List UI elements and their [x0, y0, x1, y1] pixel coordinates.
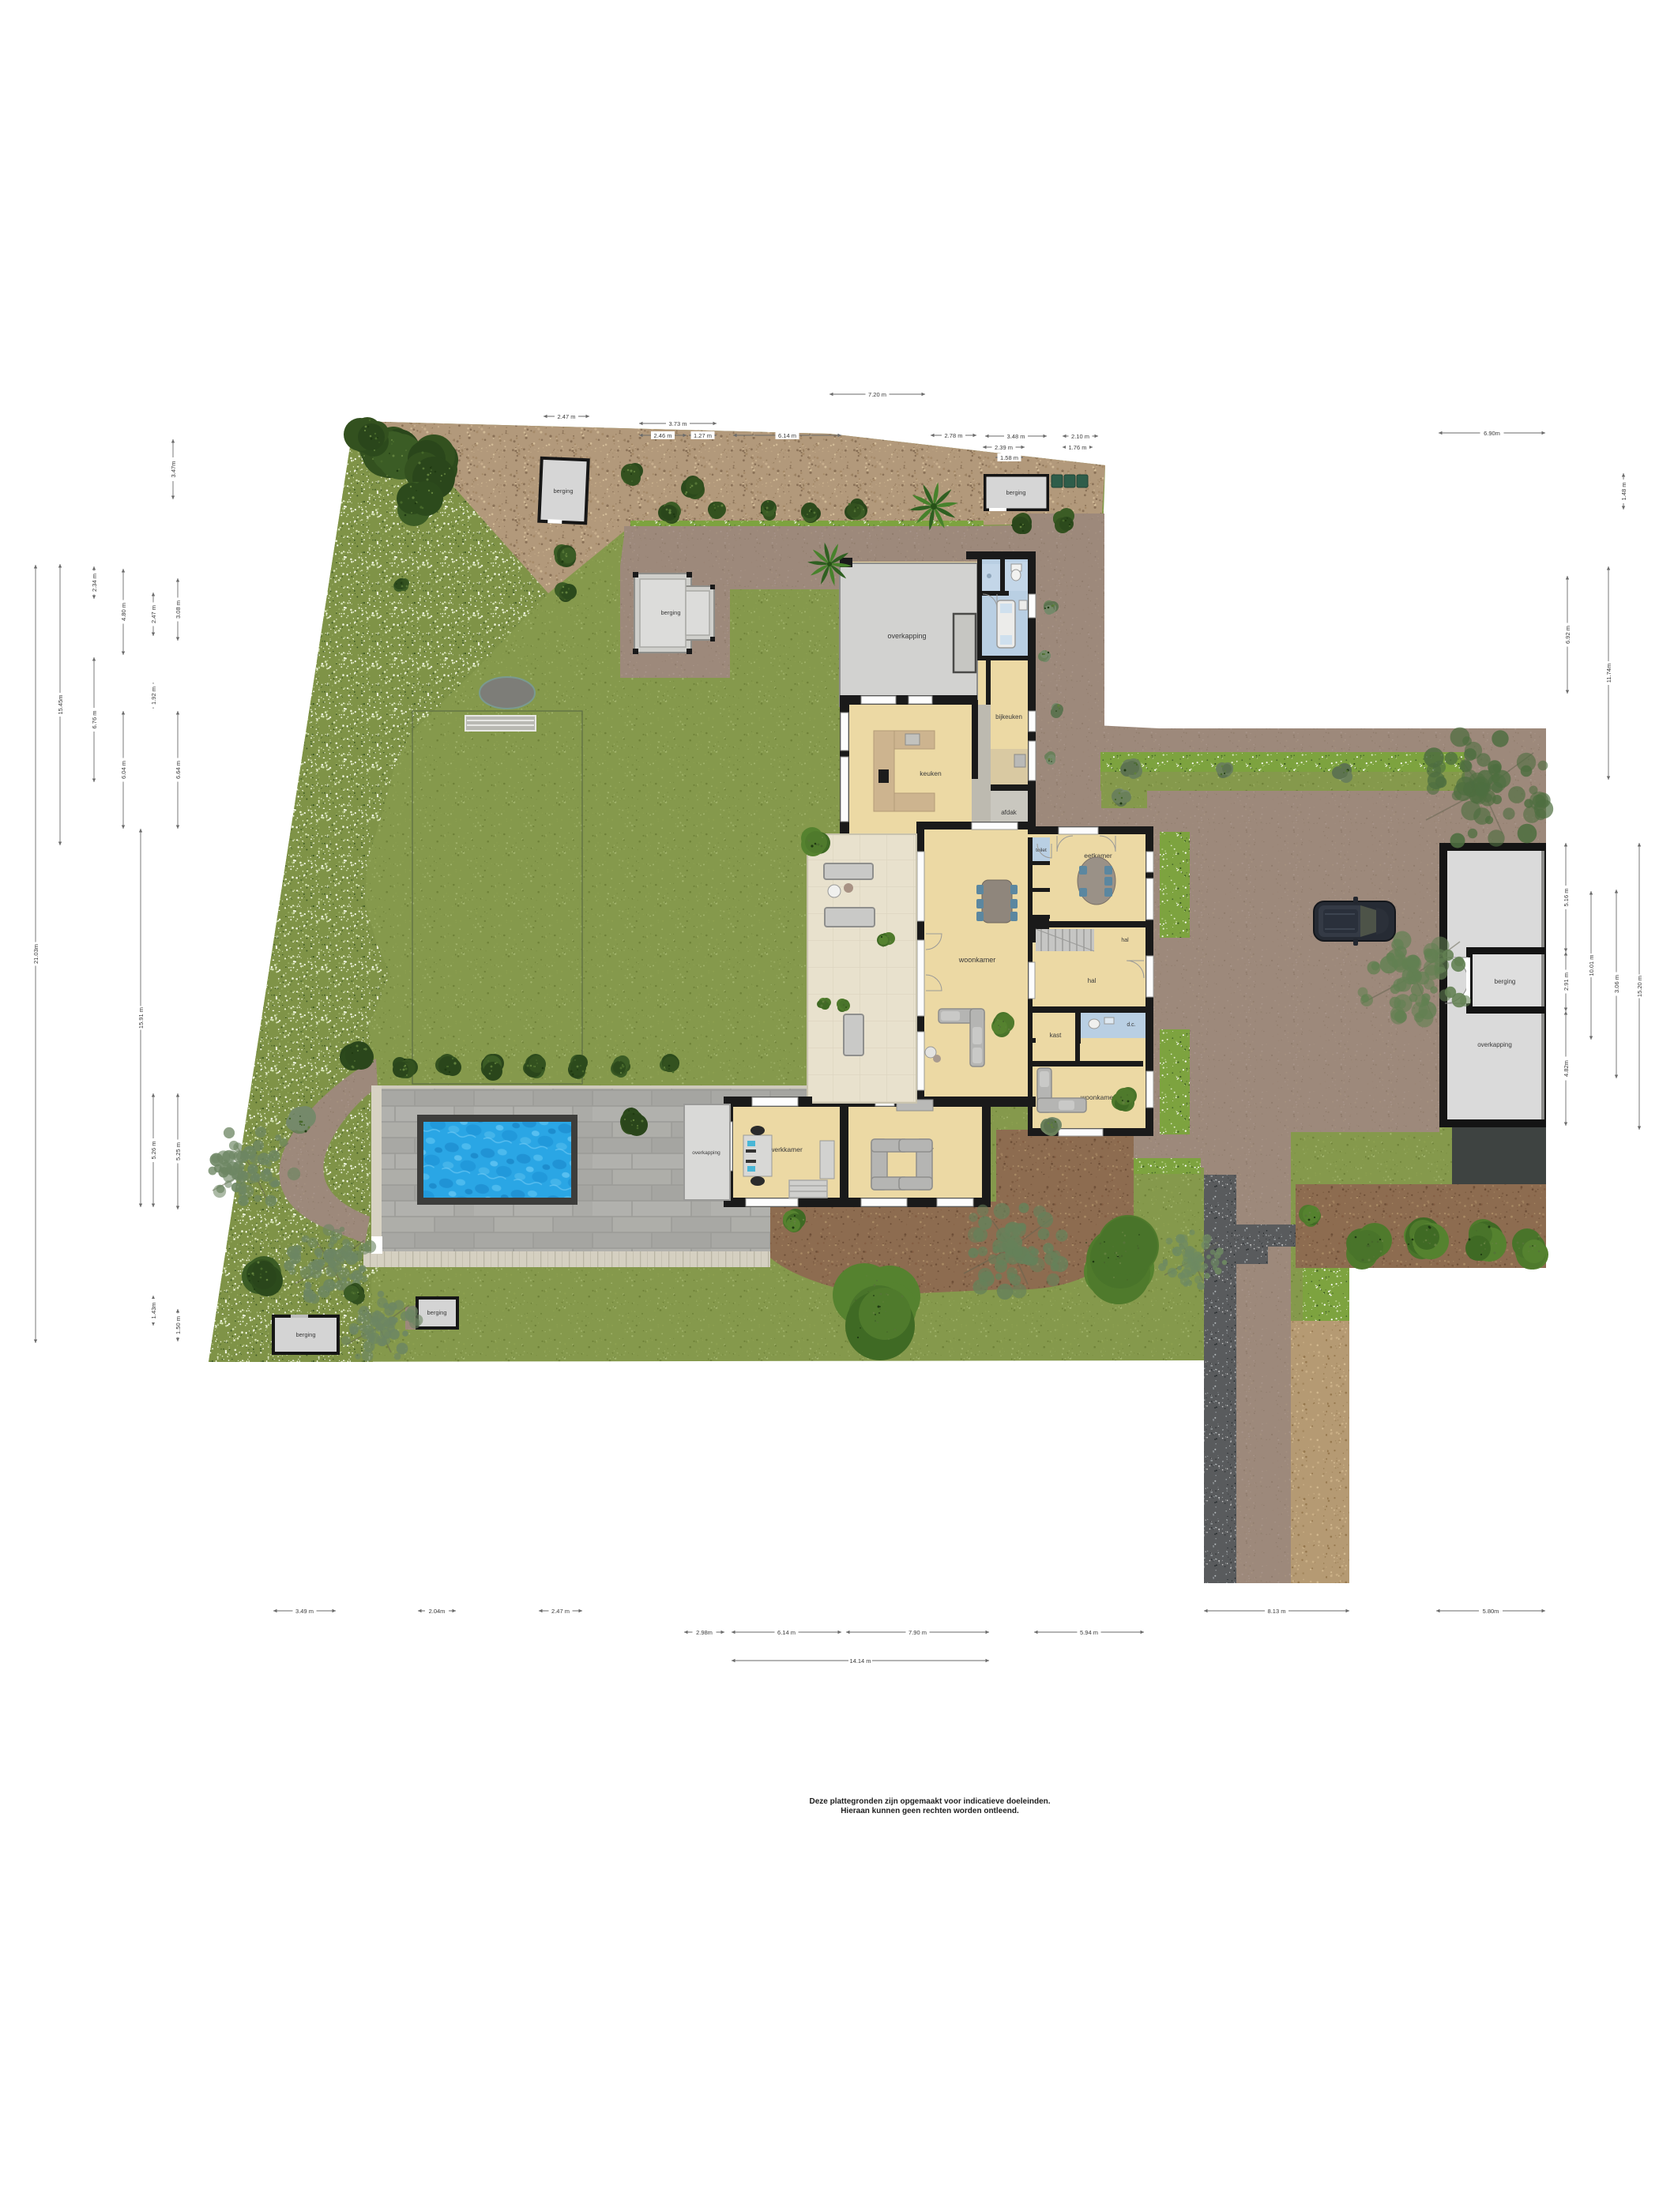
svg-text:hal: hal	[1088, 977, 1097, 984]
svg-text:overkapping: overkapping	[1477, 1041, 1512, 1048]
svg-text:1.43m: 1.43m	[150, 1303, 157, 1319]
svg-text:2.10 m: 2.10 m	[1071, 433, 1089, 440]
svg-text:2.47 m: 2.47 m	[558, 413, 576, 420]
svg-text:5.16 m: 5.16 m	[1563, 889, 1570, 907]
svg-text:overkapping: overkapping	[692, 1150, 720, 1156]
svg-text:5.80m: 5.80m	[1483, 1608, 1499, 1615]
svg-text:toilet: toilet	[1036, 848, 1047, 853]
svg-text:3.47m: 3.47m	[170, 461, 177, 478]
svg-text:7.90 m: 7.90 m	[908, 1629, 927, 1636]
svg-text:berging: berging	[553, 487, 573, 495]
svg-text:6.90m: 6.90m	[1484, 430, 1500, 437]
svg-text:2.47 m: 2.47 m	[551, 1608, 570, 1615]
svg-text:werkkamer: werkkamer	[769, 1145, 803, 1153]
svg-text:1.58 m: 1.58 m	[1000, 454, 1018, 461]
svg-text:2.46 m: 2.46 m	[654, 432, 672, 439]
svg-text:berging: berging	[1495, 978, 1516, 985]
svg-text:2.47 m: 2.47 m	[150, 605, 157, 623]
svg-text:3.06 m: 3.06 m	[1613, 975, 1620, 993]
svg-text:afdak: afdak	[1001, 809, 1018, 816]
svg-text:5.94 m: 5.94 m	[1080, 1629, 1098, 1636]
svg-text:hal: hal	[1121, 938, 1129, 943]
svg-text:berging: berging	[1006, 489, 1025, 496]
svg-text:bijkeuken: bijkeuken	[995, 713, 1022, 720]
svg-text:5.25 m: 5.25 m	[175, 1142, 182, 1161]
svg-text:4.80 m: 4.80 m	[120, 603, 127, 621]
svg-text:d.c.: d.c.	[1127, 1022, 1135, 1028]
svg-text:3.73 m: 3.73 m	[669, 420, 687, 427]
svg-text:15.45m: 15.45m	[57, 694, 64, 714]
svg-text:15.91 m: 15.91 m	[137, 1007, 145, 1029]
svg-text:5.26 m: 5.26 m	[150, 1142, 157, 1160]
svg-text:overkapping: overkapping	[887, 632, 926, 640]
svg-text:14.14 m: 14.14 m	[849, 1657, 871, 1665]
svg-text:6.14 m: 6.14 m	[778, 432, 796, 439]
svg-text:1.48 m: 1.48 m	[1620, 483, 1627, 501]
svg-text:keuken: keuken	[920, 769, 942, 777]
svg-text:2.39 m: 2.39 m	[995, 444, 1013, 451]
svg-text:3.49 m: 3.49 m	[295, 1608, 314, 1615]
svg-text:berging: berging	[427, 1309, 446, 1316]
svg-text:Hieraan kunnen geen rechten wo: Hieraan kunnen geen rechten worden ontle…	[841, 1807, 1019, 1815]
svg-text:7.20 m: 7.20 m	[868, 391, 886, 398]
svg-text:6.64 m: 6.64 m	[175, 761, 182, 779]
svg-text:6.76 m: 6.76 m	[91, 711, 98, 729]
svg-text:berging: berging	[295, 1331, 315, 1338]
svg-text:6.04 m: 6.04 m	[120, 761, 127, 779]
svg-text:11.74m: 11.74m	[1605, 664, 1612, 683]
svg-text:1.92 m: 1.92 m	[150, 687, 157, 705]
svg-text:berging: berging	[660, 609, 680, 616]
svg-text:10.01 m: 10.01 m	[1588, 954, 1595, 976]
svg-text:2.04m: 2.04m	[429, 1608, 446, 1615]
svg-text:3.48 m: 3.48 m	[1007, 433, 1025, 440]
svg-text:kast: kast	[1050, 1032, 1062, 1039]
svg-text:2.78 m: 2.78 m	[945, 432, 963, 439]
svg-text:1.76 m: 1.76 m	[1069, 444, 1087, 451]
svg-text:4.82m: 4.82m	[1563, 1060, 1570, 1077]
svg-text:8.13 m: 8.13 m	[1268, 1608, 1286, 1615]
svg-text:3.08 m: 3.08 m	[175, 600, 182, 619]
svg-text:21.03m: 21.03m	[32, 944, 39, 964]
svg-text:Deze plattegronden zijn opgema: Deze plattegronden zijn opgemaakt voor i…	[809, 1797, 1050, 1806]
svg-text:2.34 m: 2.34 m	[91, 574, 98, 592]
svg-text:1.27 m: 1.27 m	[694, 432, 712, 439]
svg-text:6.92 m: 6.92 m	[1564, 626, 1571, 644]
svg-text:1.50 m: 1.50 m	[175, 1316, 182, 1334]
svg-text:2.91 m: 2.91 m	[1563, 972, 1570, 991]
svg-text:6.14 m: 6.14 m	[777, 1629, 796, 1636]
svg-text:woonkamer: woonkamer	[958, 956, 996, 964]
svg-text:15.20 m: 15.20 m	[1636, 976, 1643, 997]
svg-text:2.98m: 2.98m	[696, 1629, 713, 1636]
